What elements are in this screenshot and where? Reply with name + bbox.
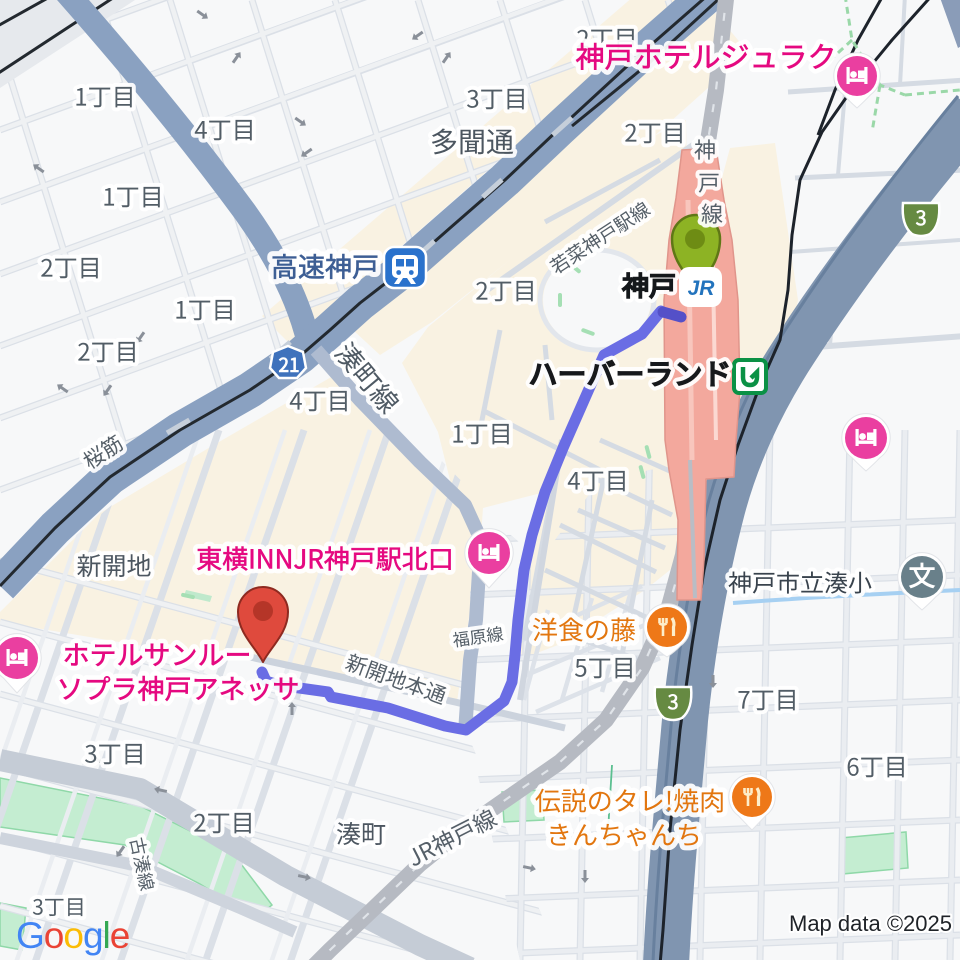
svg-text:JR: JR bbox=[688, 277, 716, 300]
svg-text:Map data ©2025: Map data ©2025 bbox=[789, 911, 952, 936]
svg-text:Google: Google bbox=[16, 915, 129, 956]
